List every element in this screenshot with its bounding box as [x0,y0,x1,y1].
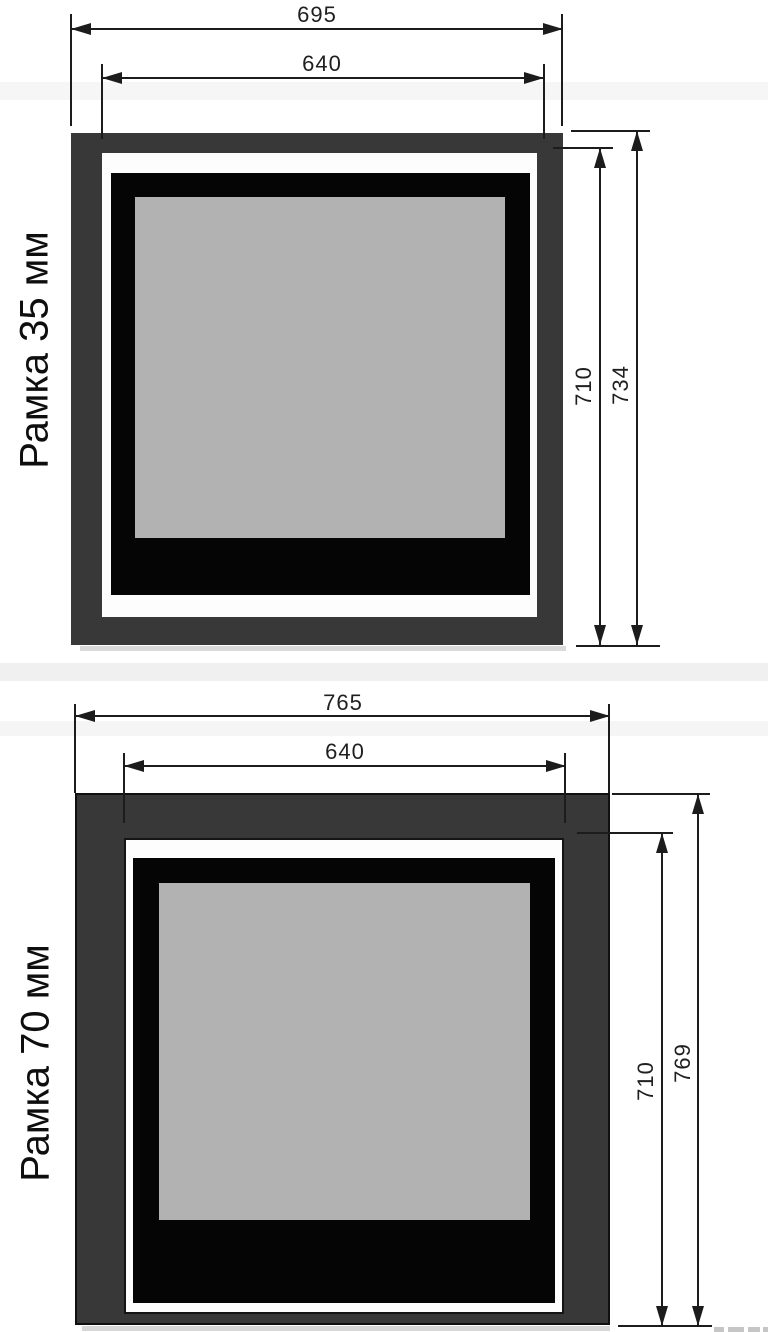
dim-640b-line [124,765,566,767]
frame-70-shadow [82,1326,610,1331]
watermark-fragment [714,1327,724,1332]
arrowhead-up-icon [656,833,668,853]
scan-band [0,721,768,736]
arrowhead-right-icon [546,760,566,772]
arrowhead-right-icon [543,23,563,35]
arrowhead-left-icon [71,23,91,35]
dim-640a-line [102,77,544,79]
arrowhead-down-icon [594,625,606,645]
arrowhead-up-icon [631,131,643,151]
technical-drawing-canvas: Рамка 35 мм 695 640 710 734 [0,0,768,1332]
arrowhead-left-icon [124,760,144,772]
frame-70-glass [159,883,530,1220]
frame-35-shadow [80,646,566,651]
scan-band [0,663,768,681]
dim-710a-label: 710 [571,366,597,406]
arrowhead-down-icon [692,1306,704,1326]
frame-35-side-label: Рамка 35 мм [13,231,58,468]
dim-734-label: 734 [608,365,634,405]
watermark-fragment [748,1327,760,1332]
dim-765-label: 765 [323,690,363,716]
dim-695-label: 695 [297,2,337,28]
arrowhead-left-icon [75,710,95,722]
frame-70-side-label: Рамка 70 мм [14,944,59,1181]
arrowhead-right-icon [590,710,610,722]
arrowhead-left-icon [102,72,122,84]
frame-35-glass [135,197,505,538]
dim-bottom-ext-top-diagram [576,645,660,647]
arrowhead-up-icon [594,148,606,168]
dim-bottom-ext-bottom-diagram [618,1325,712,1327]
arrowhead-down-icon [656,1306,668,1326]
dim-769-label: 769 [670,1043,696,1083]
dim-769-line [697,794,699,1326]
arrowhead-up-icon [692,794,704,814]
watermark-fragment [728,1327,744,1332]
watermark-fragment [763,1327,768,1332]
dim-640b-label: 640 [325,739,365,765]
dim-710a-line [599,148,601,645]
dim-695-line [71,28,563,30]
arrowhead-right-icon [524,72,544,84]
dim-710b-line [661,833,663,1326]
scan-band [0,82,768,100]
arrowhead-down-icon [631,625,643,645]
dim-710b-label: 710 [633,1061,659,1101]
dim-734-line [636,131,638,645]
dim-640a-label: 640 [302,51,342,77]
